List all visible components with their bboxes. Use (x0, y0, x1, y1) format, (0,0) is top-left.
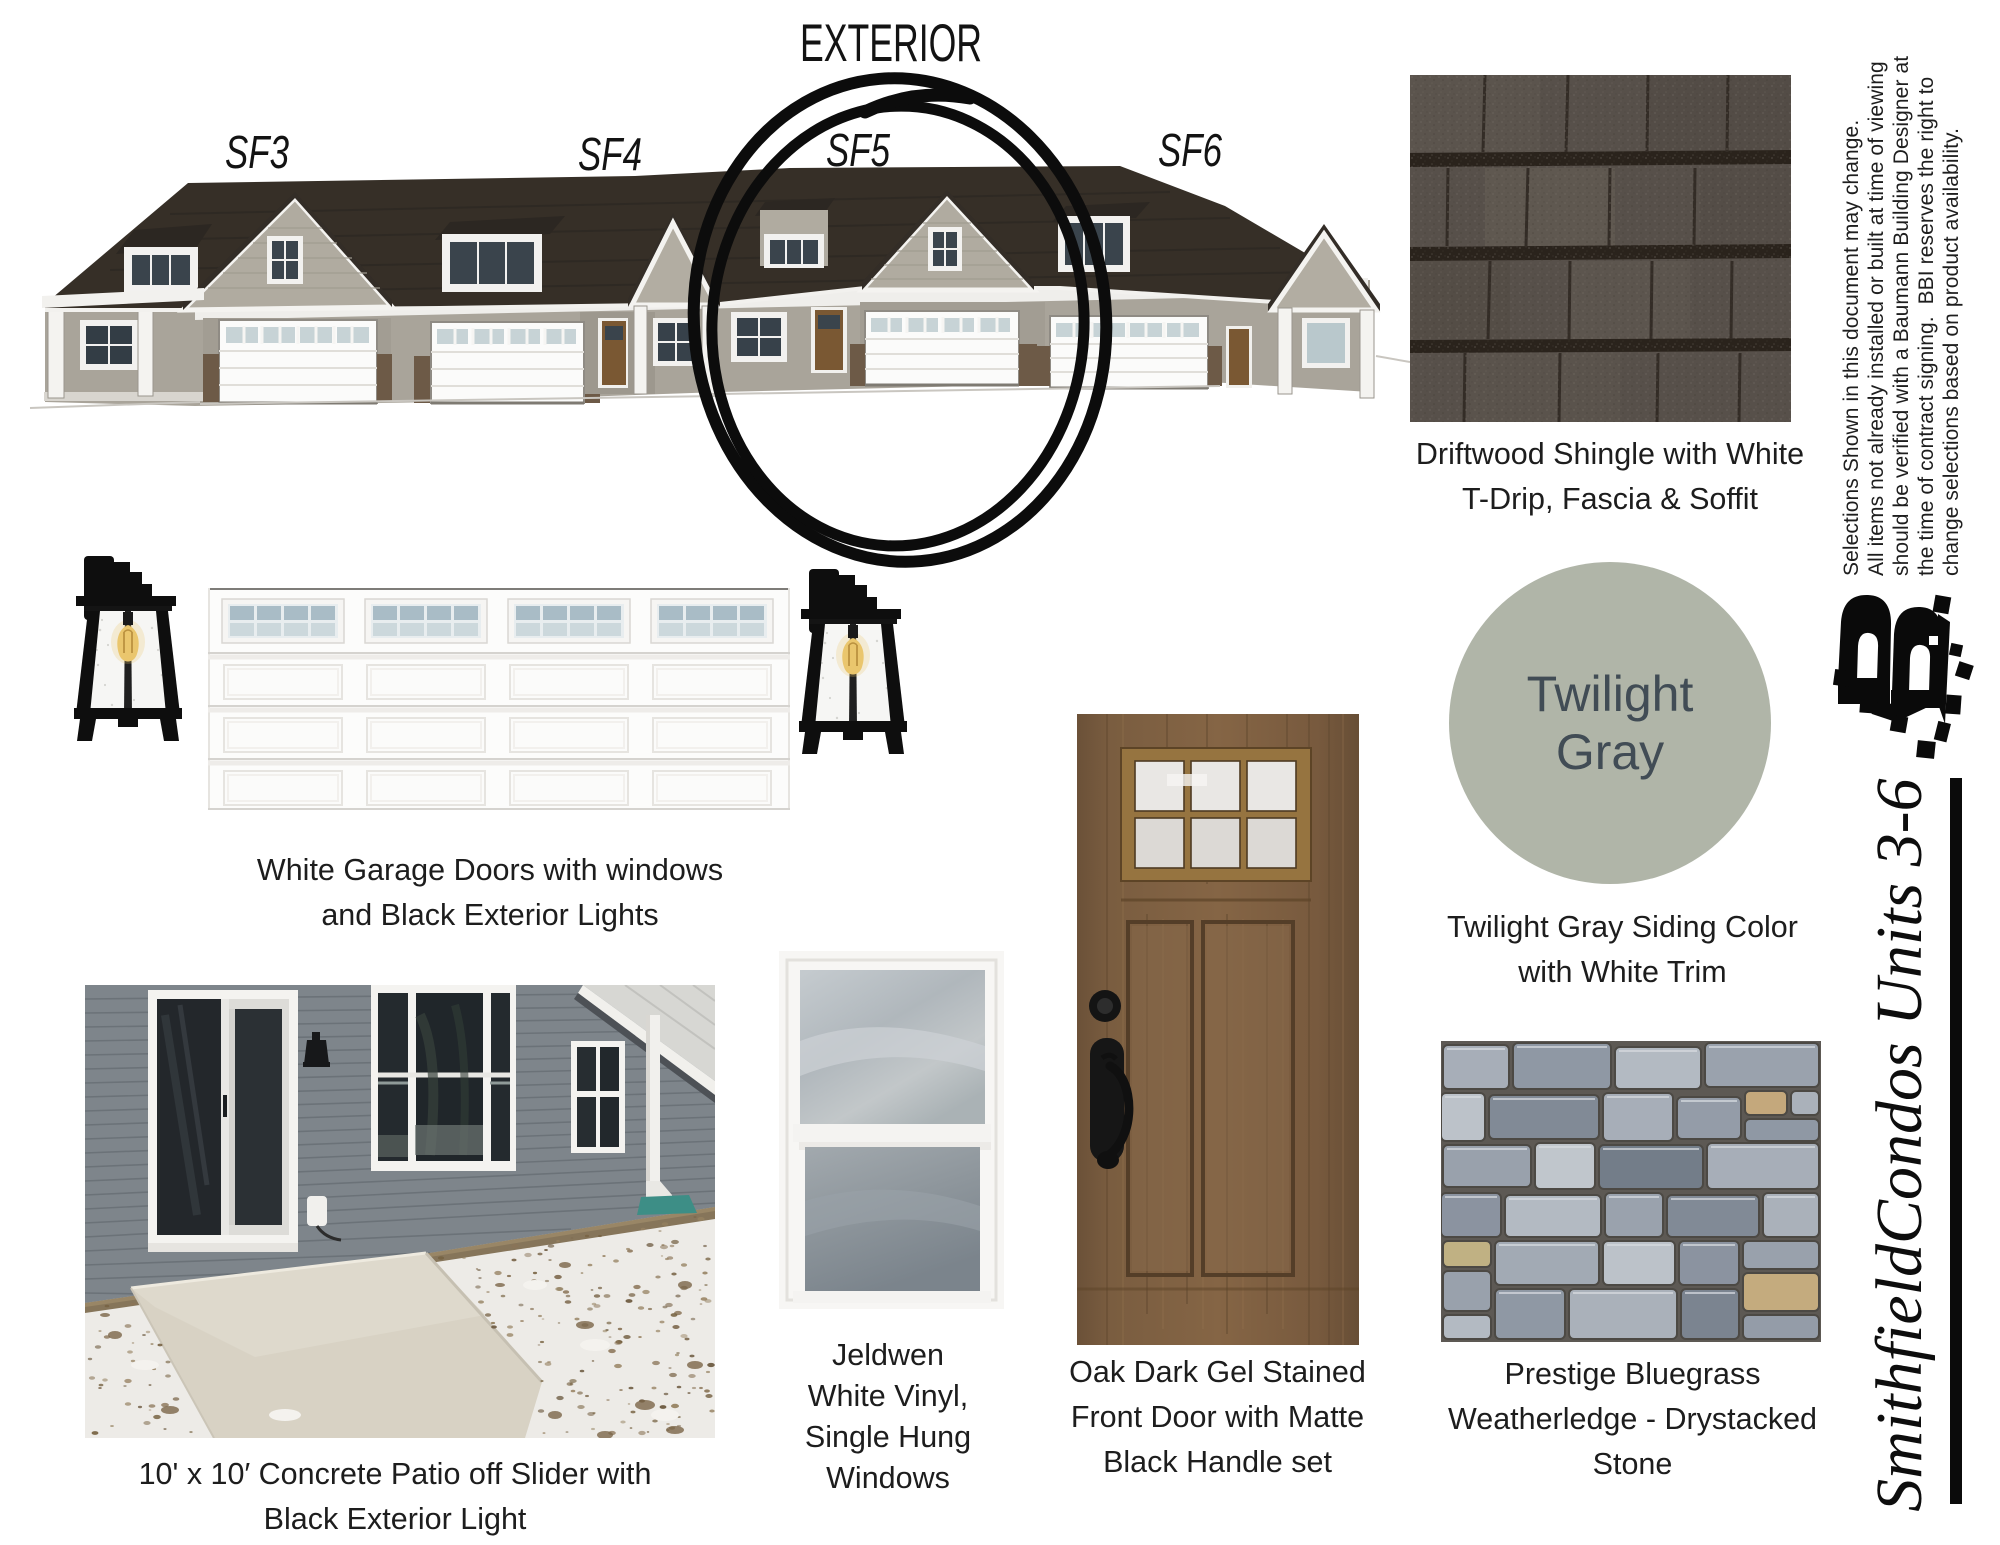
svg-text:Twilight: Twilight (1527, 666, 1694, 722)
svg-text:SF3: SF3 (225, 130, 289, 178)
svg-text:Gray: Gray (1556, 724, 1664, 780)
svg-text:SF4: SF4 (578, 130, 642, 180)
